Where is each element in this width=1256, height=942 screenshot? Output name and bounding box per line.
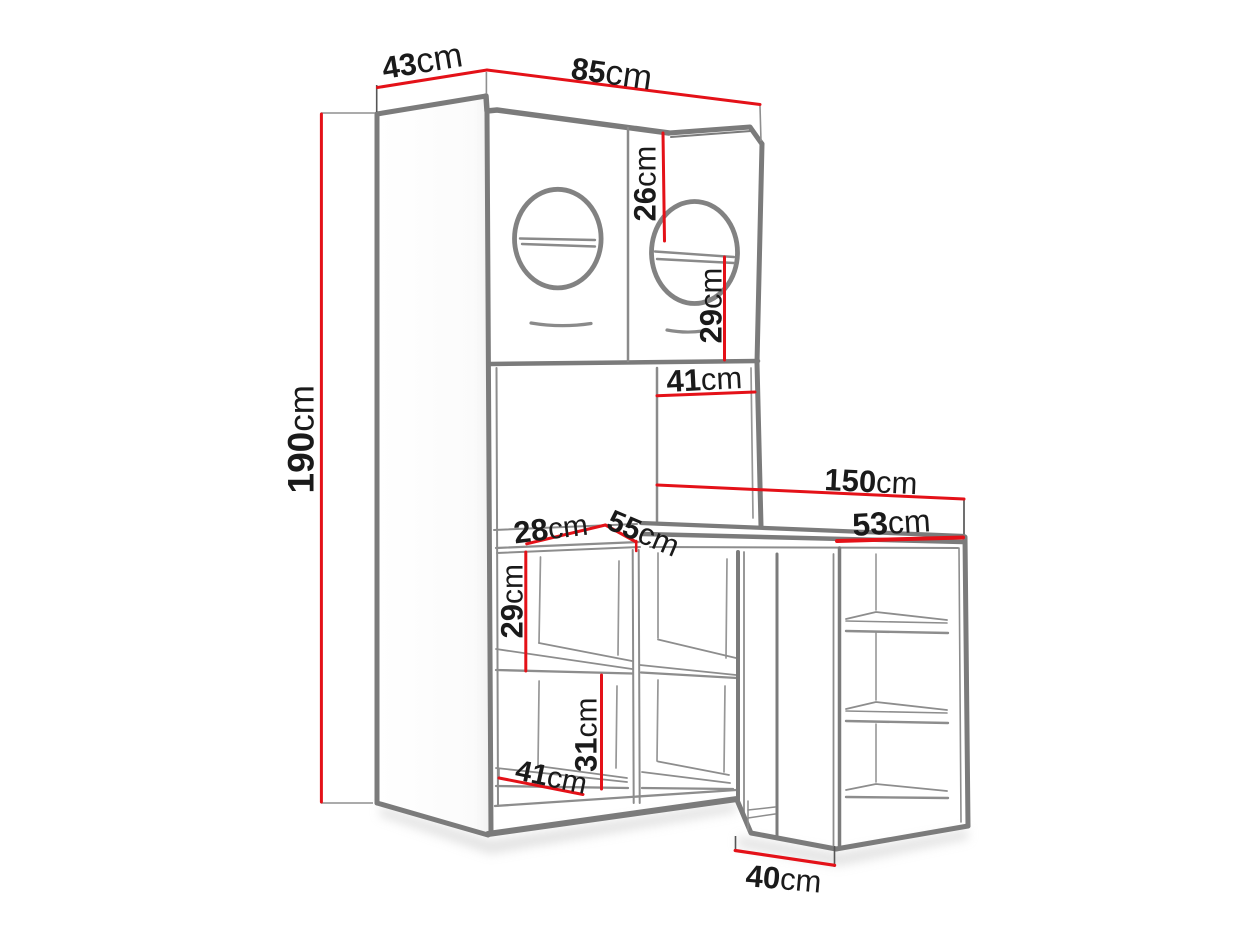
svg-text:29cm: 29cm — [694, 268, 729, 344]
svg-text:190cm: 190cm — [281, 385, 322, 493]
svg-text:41cm: 41cm — [666, 360, 744, 399]
svg-text:31cm: 31cm — [569, 698, 604, 772]
svg-text:150cm: 150cm — [824, 462, 919, 501]
svg-text:26cm: 26cm — [628, 146, 663, 222]
svg-text:40cm: 40cm — [744, 858, 823, 899]
svg-text:29cm: 29cm — [495, 564, 530, 638]
svg-text:53cm: 53cm — [851, 502, 931, 543]
